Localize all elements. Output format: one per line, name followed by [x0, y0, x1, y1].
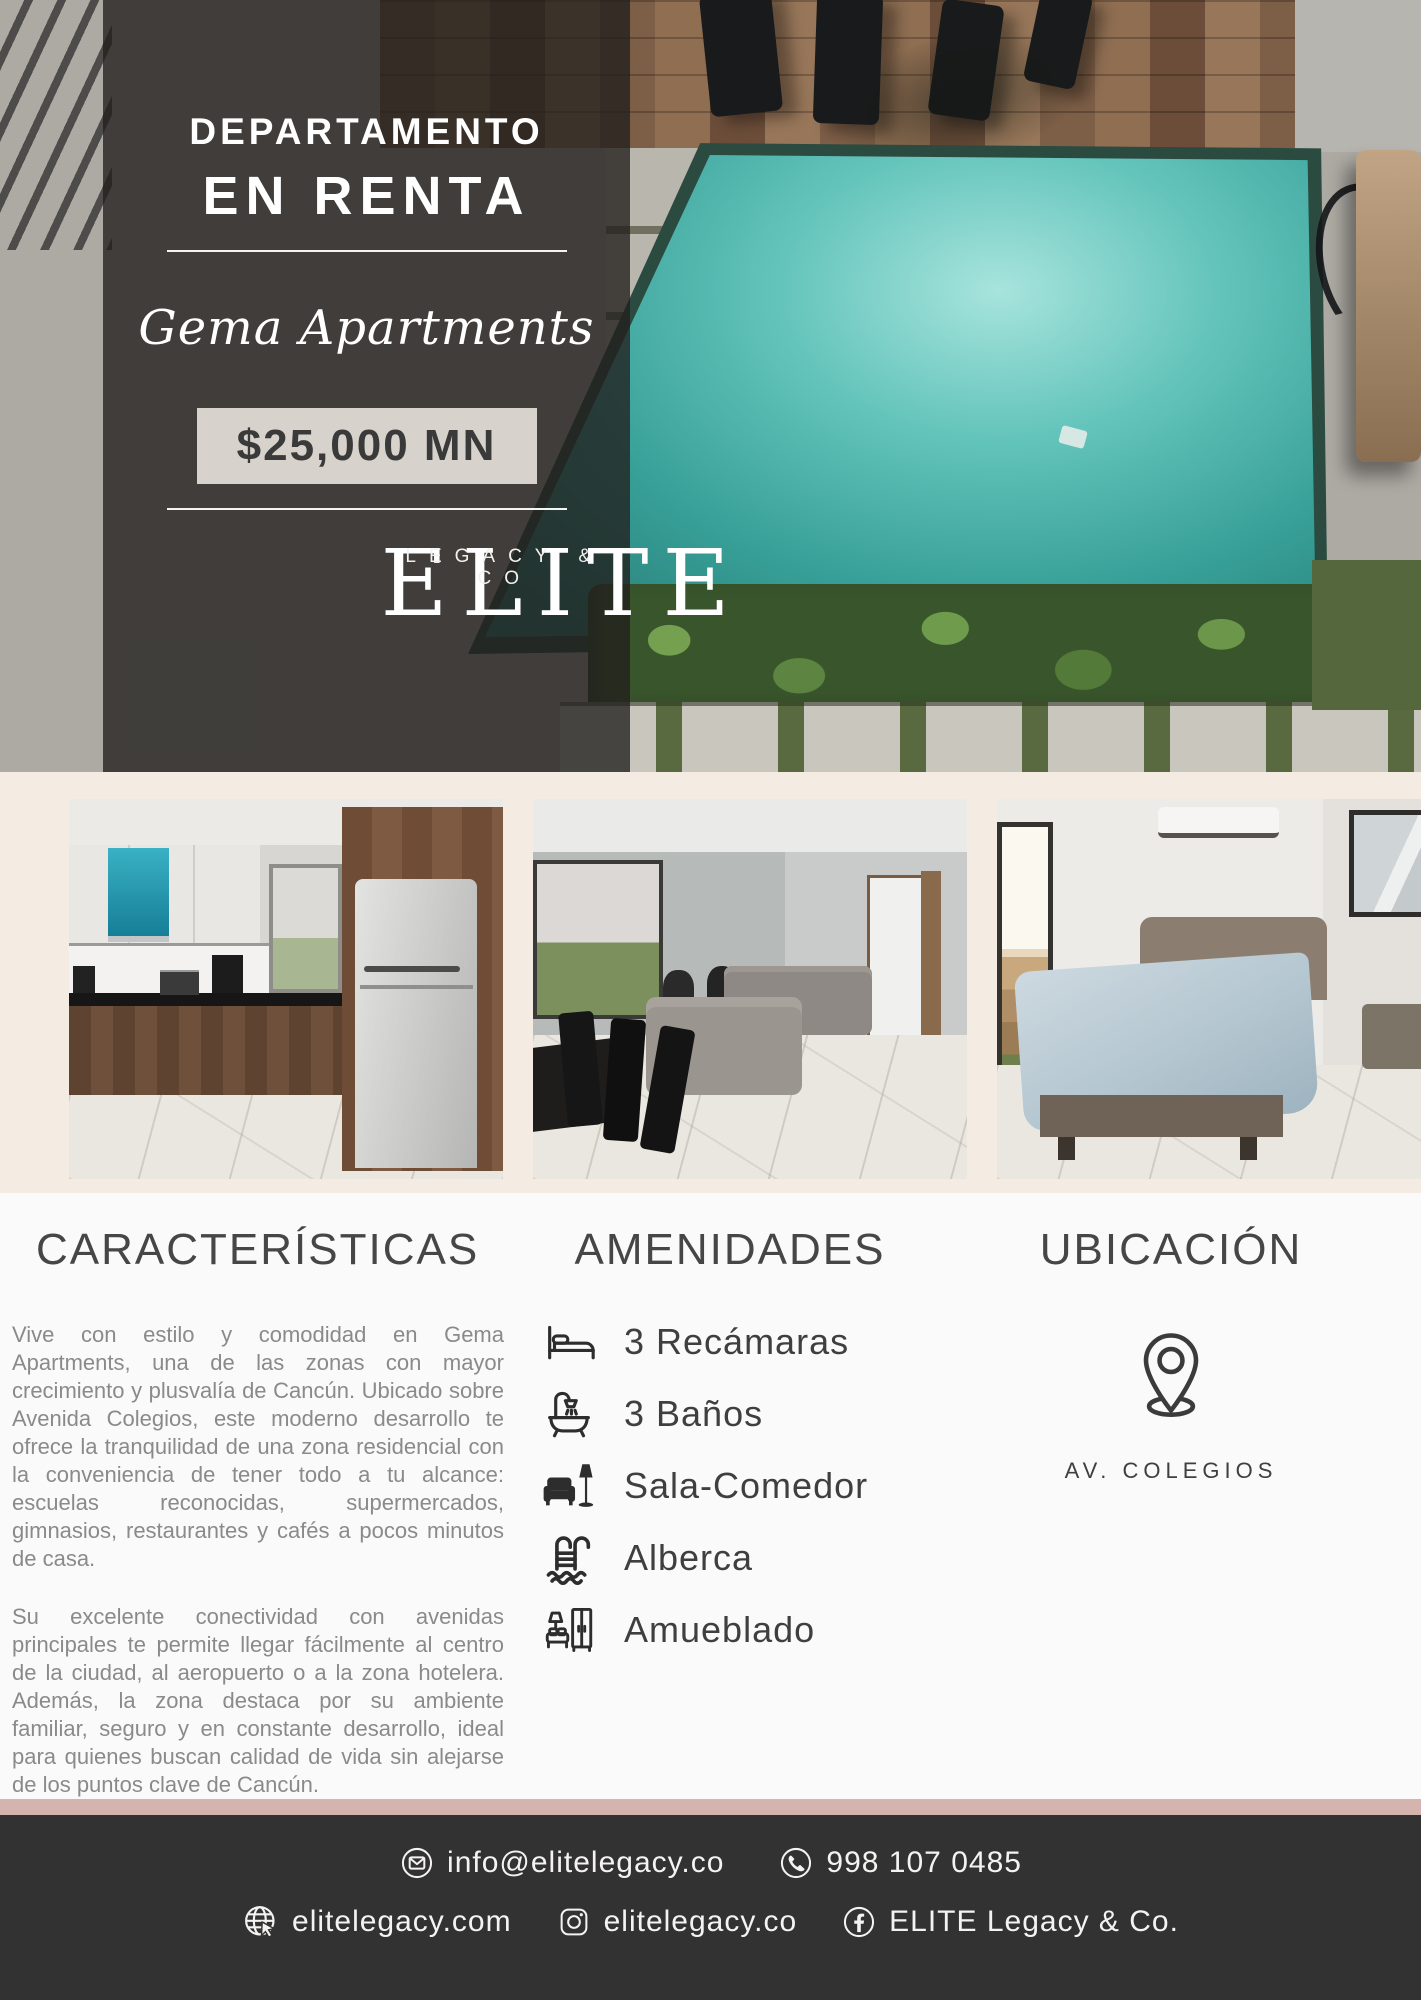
instagram-icon: [556, 1904, 592, 1940]
address-text: AV. COLEGIOS: [1005, 1458, 1337, 1484]
facebook-link[interactable]: ELITE Legacy & Co.: [841, 1904, 1179, 1940]
living-window: [533, 860, 663, 1020]
amenity-label: 3 Recámaras: [624, 1321, 849, 1363]
amenity-label: Sala-Comedor: [624, 1465, 868, 1507]
characteristics-paragraph: Vive con estilo y comodidad en Gema Apar…: [12, 1321, 504, 1573]
amenity-label: Amueblado: [624, 1609, 815, 1651]
bed-base: [1040, 1095, 1283, 1137]
divider-line: [167, 250, 567, 252]
ottoman: [1362, 1004, 1421, 1069]
amenity-row: Sala-Comedor: [540, 1457, 940, 1515]
email-link[interactable]: info@elitelegacy.co: [399, 1845, 724, 1881]
bathtub-icon: [540, 1385, 598, 1443]
email-text: info@elitelegacy.co: [447, 1846, 724, 1880]
amenities-column: AMENIDADES 3 Recámaras: [470, 1225, 940, 1673]
kitchen-range-hood: [108, 848, 169, 941]
facebook-text: ELITE Legacy & Co.: [889, 1905, 1179, 1939]
characteristics-paragraph: Su excelente conectividad con avenidas p…: [12, 1603, 504, 1799]
amenity-label: Alberca: [624, 1537, 753, 1579]
location-column: UBICACIÓN AV. COLEGIOS: [1005, 1225, 1337, 1484]
amenities-heading: AMENIDADES: [530, 1225, 930, 1275]
bed-icon: [540, 1313, 598, 1371]
price-badge: $25,000 MN: [197, 408, 537, 484]
living-ceiling: [533, 799, 967, 860]
living-dining-photo: [533, 799, 967, 1179]
lounge-chair: [1356, 150, 1421, 462]
phone-icon: [778, 1845, 814, 1881]
coffee-maker: [73, 966, 95, 993]
envelope-icon: [399, 1845, 435, 1881]
open-door: [921, 871, 941, 1053]
instagram-text: elitelegacy.co: [604, 1905, 798, 1939]
refrigerator: [355, 879, 477, 1168]
website-link[interactable]: elitelegacy.com: [242, 1903, 512, 1941]
bedroom-window: [1349, 810, 1421, 916]
photo-strip: [0, 772, 1421, 1193]
accent-band: [0, 1799, 1421, 1815]
amenity-row: 3 Baños: [540, 1385, 940, 1443]
contact-row-2: elitelegacy.com elitelegacy.co ELITE Leg…: [0, 1903, 1421, 1941]
stepping-stones: [560, 702, 1421, 772]
pool-ladder-icon: [540, 1529, 598, 1587]
characteristics-heading: CARACTERÍSTICAS: [36, 1225, 456, 1275]
concrete-terrace: [1295, 0, 1421, 152]
bed-leg: [1240, 1137, 1257, 1160]
rental-flyer: DEPARTAMENTO EN RENTA Gema Apartments $2…: [0, 0, 1421, 2000]
facebook-icon: [841, 1904, 877, 1940]
bed-leg: [1058, 1137, 1075, 1160]
globe-cursor-icon: [242, 1903, 280, 1941]
air-conditioner: [1158, 807, 1280, 839]
details-section: CARACTERÍSTICAS Vive con estilo y comodi…: [0, 1193, 1421, 1799]
website-text: elitelegacy.com: [292, 1905, 512, 1939]
amenity-row: Alberca: [540, 1529, 940, 1587]
location-heading: UBICACIÓN: [1005, 1225, 1337, 1275]
toaster-oven: [160, 970, 199, 995]
furniture-icon: [540, 1601, 598, 1659]
refrigerator-handle: [364, 966, 459, 972]
divider-line: [167, 508, 567, 510]
phone-link[interactable]: 998 107 0485: [778, 1845, 1022, 1881]
location-pin-icon: [1121, 1323, 1221, 1423]
stair-railing: [0, 0, 112, 250]
amenity-row: Amueblado: [540, 1601, 940, 1659]
listing-status: EN RENTA: [202, 167, 530, 226]
characteristics-column: CARACTERÍSTICAS Vive con estilo y comodi…: [12, 1225, 504, 1859]
kitchen-lower-cabinets: [69, 1006, 342, 1097]
amenity-row: 3 Recámaras: [540, 1313, 940, 1371]
instagram-link[interactable]: elitelegacy.co: [556, 1904, 798, 1940]
pin-wrap: [1005, 1323, 1337, 1428]
bedroom-photo: [997, 799, 1421, 1179]
listing-category: DEPARTAMENTO: [189, 112, 543, 153]
amenities-list: 3 Recámaras 3 Baños: [470, 1313, 940, 1659]
pool-lounger: [699, 0, 783, 117]
phone-text: 998 107 0485: [826, 1846, 1022, 1880]
contact-footer: info@elitelegacy.co 998 107 0485 elitele…: [0, 1815, 1421, 2000]
contact-row-1: info@elitelegacy.co 998 107 0485: [0, 1845, 1421, 1881]
amenity-label: 3 Baños: [624, 1393, 763, 1435]
water-dispenser: [212, 955, 242, 993]
brand-tagline: LEGACY & CO: [380, 546, 631, 590]
grass-patch: [1312, 560, 1421, 710]
refrigerator-door-split: [360, 985, 473, 989]
hero-overlay-panel: DEPARTAMENTO EN RENTA Gema Apartments $2…: [103, 0, 630, 772]
armchair-lamp-icon: [540, 1457, 598, 1515]
property-name: Gema Apartments: [138, 300, 594, 358]
hero-section: DEPARTAMENTO EN RENTA Gema Apartments $2…: [0, 0, 1421, 772]
kitchen-photo: [69, 799, 503, 1179]
kitchen-window: [269, 864, 343, 993]
kitchen-countertop: [69, 993, 342, 1006]
